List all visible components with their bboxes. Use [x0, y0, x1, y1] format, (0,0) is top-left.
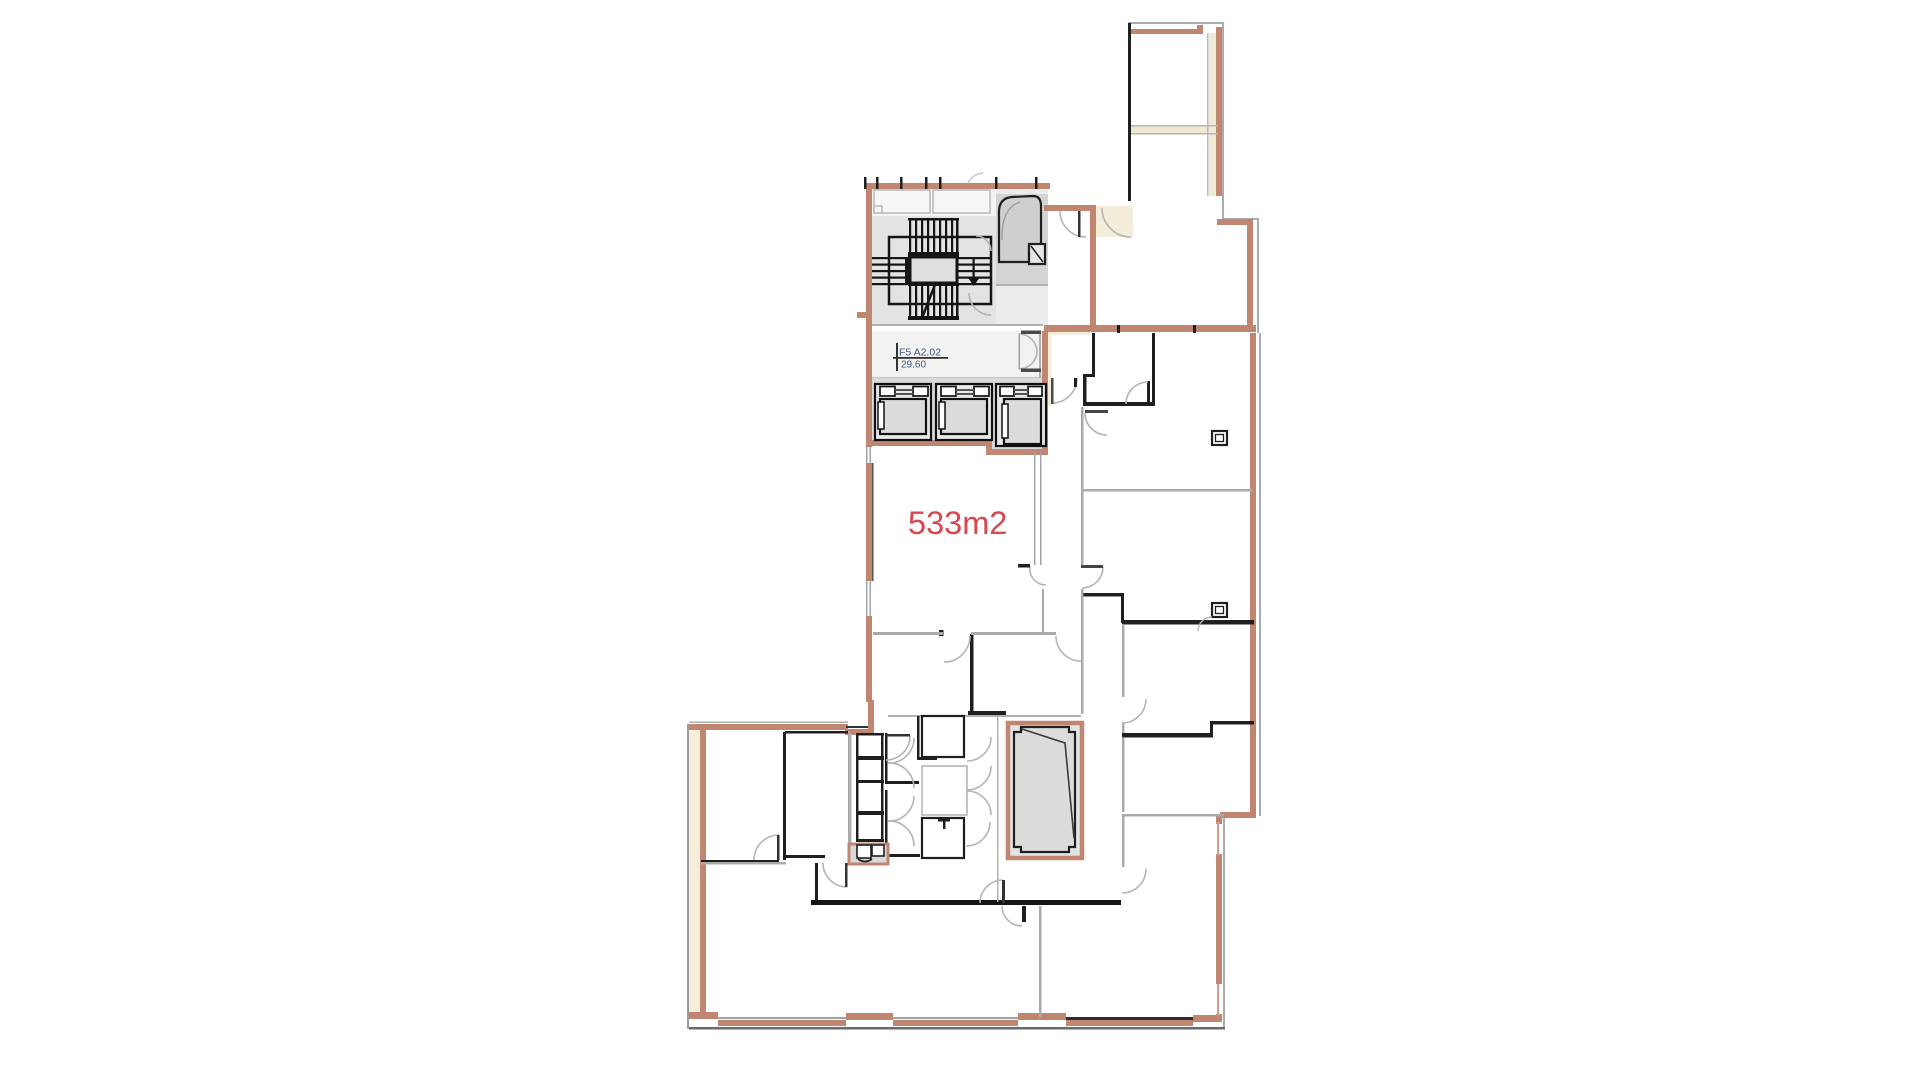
svg-text:F5 A2.02: F5 A2.02 — [899, 347, 941, 359]
svg-text:533m2: 533m2 — [908, 505, 1007, 541]
svg-text:29.60: 29.60 — [901, 360, 926, 371]
